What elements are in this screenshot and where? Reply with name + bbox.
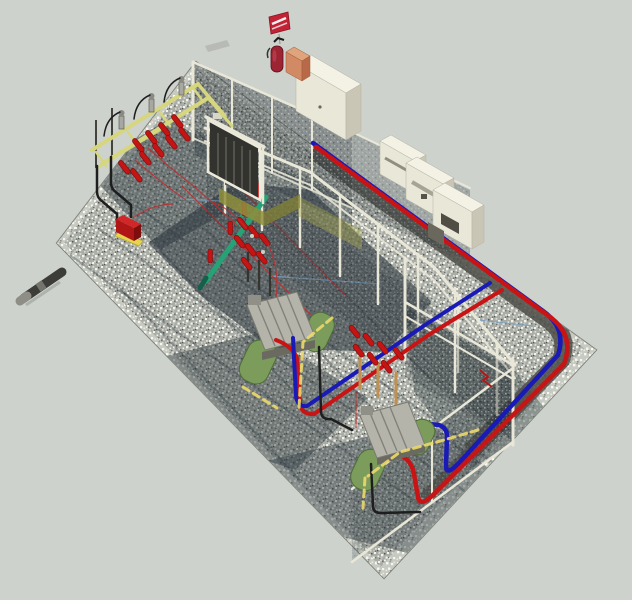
- extinguisher-highlight: [273, 50, 277, 62]
- cabinet-knob: [318, 105, 321, 108]
- substation-3d-render: 3D rendered axonometric view of an elect…: [0, 0, 632, 600]
- pipe-cap: [20, 296, 27, 301]
- render-canvas: 3D rendered axonometric view of an elect…: [0, 0, 632, 600]
- fitting: [261, 250, 265, 254]
- radiator-box: [361, 406, 373, 415]
- fitting: [250, 234, 254, 238]
- cabinet-panel: [421, 194, 427, 199]
- pipe-band: [38, 284, 44, 288]
- radiator-box: [248, 295, 261, 305]
